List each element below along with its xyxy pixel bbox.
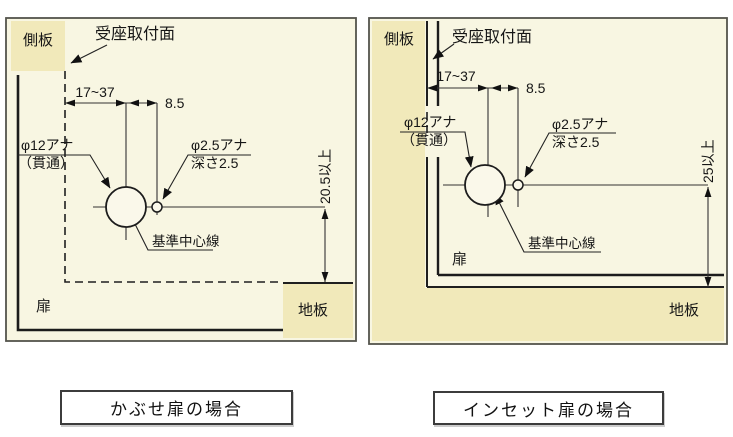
phi2-5-hole-label-line1: φ2.5アナ — [552, 116, 608, 132]
phi12-hole-label-line2: （貫通） — [401, 132, 457, 148]
door-label: 扉 — [36, 298, 51, 315]
phi2-5-hole-label-line2: 深さ2.5 — [552, 134, 600, 150]
phi12-hole-circle — [465, 165, 505, 205]
overlay-door-caption: かぶせ扉の場合 — [60, 390, 293, 425]
phi12-hole-label-line2: （貫通） — [18, 155, 74, 171]
center-line-label: 基準中心線 — [152, 233, 220, 249]
center-line-label: 基準中心線 — [528, 235, 596, 251]
phi12-hole-label-line1: φ12アナ — [404, 114, 456, 130]
inset-door-caption: インセット扉の場合 — [433, 391, 664, 425]
door-label: 扉 — [452, 251, 467, 268]
offset-dimension-label: 8.5 — [526, 80, 546, 96]
side-board-label: 側板 — [384, 30, 414, 48]
phi2-5-hole-circle — [152, 202, 162, 212]
drawing-sheet: 側板 受座取付面 17~37 8.5 φ12アナ （貫通） φ2.5アナ 深さ2… — [0, 0, 733, 437]
bottom-board-label: 地板 — [298, 301, 328, 319]
phi2-5-hole-label-line1: φ2.5アナ — [191, 137, 247, 153]
width-dimension-label: 17~37 — [436, 68, 476, 84]
mounting-face-label: 受座取付面 — [452, 28, 532, 46]
vertical-dimension-label: 20.5以上 — [317, 149, 333, 204]
bottom-board-label: 地板 — [669, 301, 699, 319]
phi2-5-hole-circle — [513, 180, 523, 190]
phi12-hole-circle — [106, 187, 146, 227]
side-board-label: 側板 — [23, 31, 53, 49]
overlay-door-caption-text: かぶせ扉の場合 — [110, 395, 243, 420]
vertical-dimension-label: 25以上 — [700, 139, 716, 183]
phi12-hole-label-line1: φ12アナ — [21, 137, 73, 153]
width-dimension-label: 17~37 — [75, 84, 115, 100]
inset-door-caption-text: インセット扉の場合 — [463, 396, 634, 421]
overlay-door-diagram: 側板 受座取付面 17~37 8.5 φ12アナ （貫通） φ2.5アナ 深さ2… — [5, 17, 357, 342]
mounting-face-label: 受座取付面 — [95, 25, 175, 43]
inset-door-diagram: 側板 受座取付面 17~37 8.5 φ12アナ （貫通） φ2.5アナ 深さ2… — [368, 17, 728, 345]
phi2-5-hole-label-line2: 深さ2.5 — [191, 155, 239, 171]
offset-dimension-label: 8.5 — [165, 95, 185, 111]
